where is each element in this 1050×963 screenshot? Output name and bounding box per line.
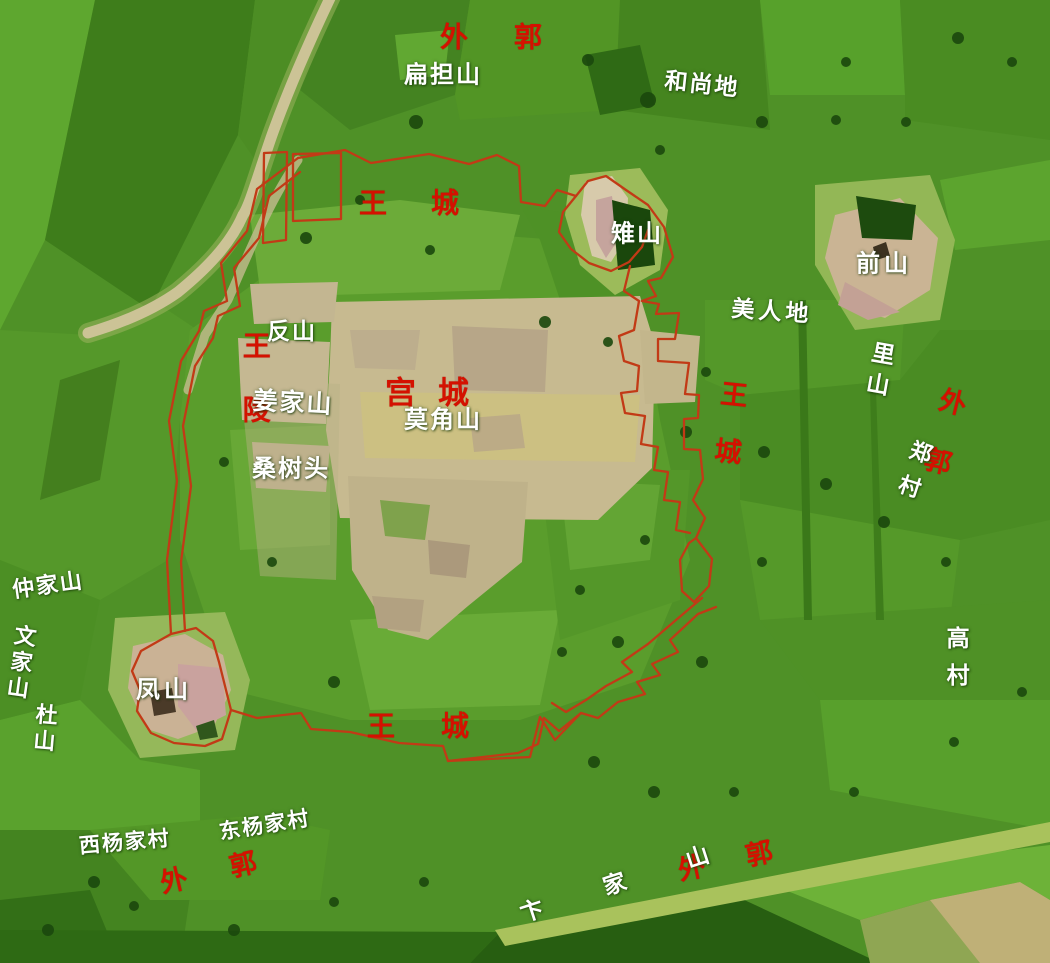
sangshutou-mound	[252, 442, 330, 492]
jiangjiashan-mound	[238, 338, 330, 424]
terrain-map: 外郭王城王陵宫城王城外郭王城外郭外郭扁担山和尚地雉山前山美人地里山郑村反山姜家山…	[0, 0, 1050, 963]
fengshan-hill	[108, 612, 250, 758]
fanshan-mound	[250, 282, 338, 324]
terrain-relief-layer	[0, 0, 1050, 963]
